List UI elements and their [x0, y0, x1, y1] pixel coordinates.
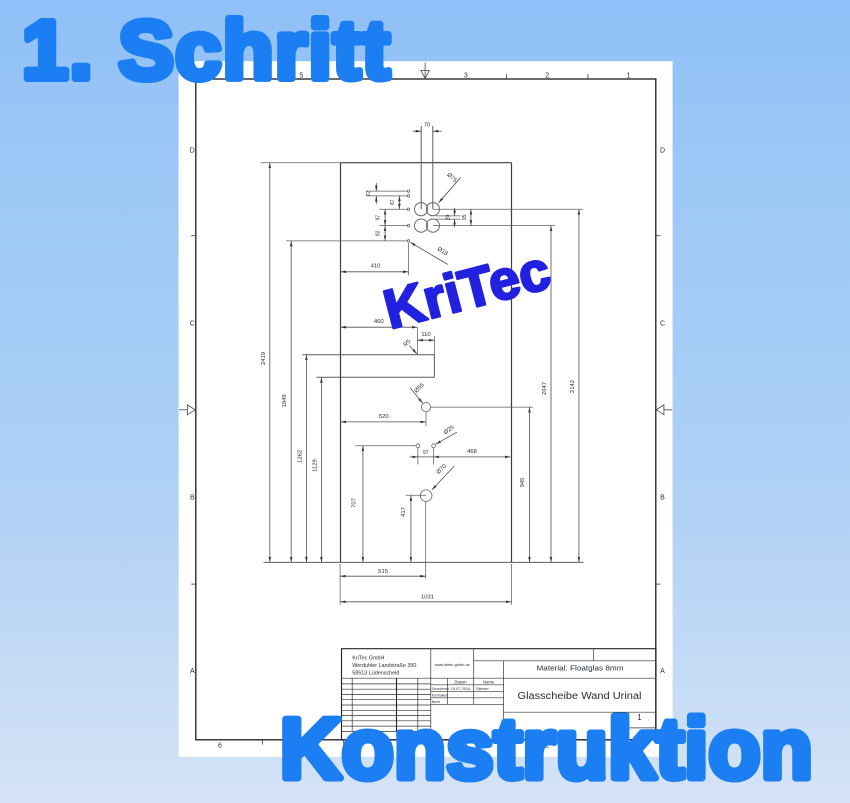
- svg-text:D: D: [190, 147, 195, 154]
- svg-text:B: B: [660, 494, 665, 501]
- svg-text:KriTec GmbH: KriTec GmbH: [352, 656, 384, 662]
- svg-text:110: 110: [421, 332, 431, 338]
- svg-text:97: 97: [423, 450, 429, 456]
- svg-text:515: 515: [378, 569, 389, 575]
- svg-text:2419: 2419: [261, 352, 267, 365]
- svg-text:C: C: [190, 321, 195, 328]
- svg-text:Material: Floatglas 8mm: Material: Floatglas 8mm: [537, 666, 624, 673]
- svg-text:A: A: [190, 668, 195, 675]
- svg-text:www.kritec-gmbh.de: www.kritec-gmbh.de: [435, 662, 470, 667]
- svg-text:6: 6: [218, 742, 222, 749]
- svg-text:20: 20: [446, 215, 452, 221]
- svg-text:945: 945: [520, 477, 526, 488]
- svg-text:19.07.2014: 19.07.2014: [451, 686, 471, 691]
- svg-text:Name: Name: [483, 680, 495, 685]
- svg-text:1949: 1949: [282, 394, 288, 407]
- svg-text:707: 707: [351, 498, 357, 508]
- svg-text:2: 2: [545, 73, 549, 80]
- svg-text:1262: 1262: [297, 450, 303, 463]
- svg-text:3: 3: [464, 73, 468, 80]
- svg-text:A: A: [660, 668, 665, 675]
- svg-text:Werduhler Landstraße 350: Werduhler Landstraße 350: [352, 663, 416, 669]
- svg-text:Gezeichnet: Gezeichnet: [432, 687, 449, 691]
- svg-text:Kontrolliert: Kontrolliert: [432, 694, 448, 698]
- svg-text:Konstruktion: Konstruktion: [280, 702, 813, 797]
- svg-text:1129: 1129: [312, 459, 318, 472]
- svg-text:Sterner: Sterner: [476, 686, 489, 691]
- svg-text:27: 27: [366, 191, 372, 197]
- svg-text:1031: 1031: [421, 595, 434, 601]
- svg-text:92: 92: [376, 230, 382, 236]
- svg-text:Glasscheibe Wand Urinal: Glasscheibe Wand Urinal: [518, 691, 642, 702]
- svg-text:C: C: [660, 321, 665, 328]
- svg-text:Datum: Datum: [454, 680, 467, 685]
- svg-text:460: 460: [374, 319, 385, 325]
- svg-text:97: 97: [376, 215, 382, 221]
- svg-text:1: 1: [627, 73, 631, 80]
- svg-text:410: 410: [371, 264, 382, 270]
- svg-text:1. Schritt: 1. Schritt: [22, 4, 391, 97]
- svg-text:417: 417: [401, 507, 407, 517]
- svg-text:87: 87: [390, 199, 396, 205]
- svg-text:B: B: [190, 494, 195, 501]
- svg-text:2142: 2142: [570, 380, 576, 393]
- svg-text:D: D: [660, 147, 665, 154]
- svg-text:520: 520: [379, 414, 390, 420]
- svg-text:468: 468: [467, 449, 478, 455]
- svg-text:58513 Lüdenscheid: 58513 Lüdenscheid: [352, 671, 399, 677]
- svg-text:95: 95: [462, 214, 468, 220]
- svg-text:70: 70: [424, 123, 431, 129]
- svg-text:2047: 2047: [542, 382, 548, 395]
